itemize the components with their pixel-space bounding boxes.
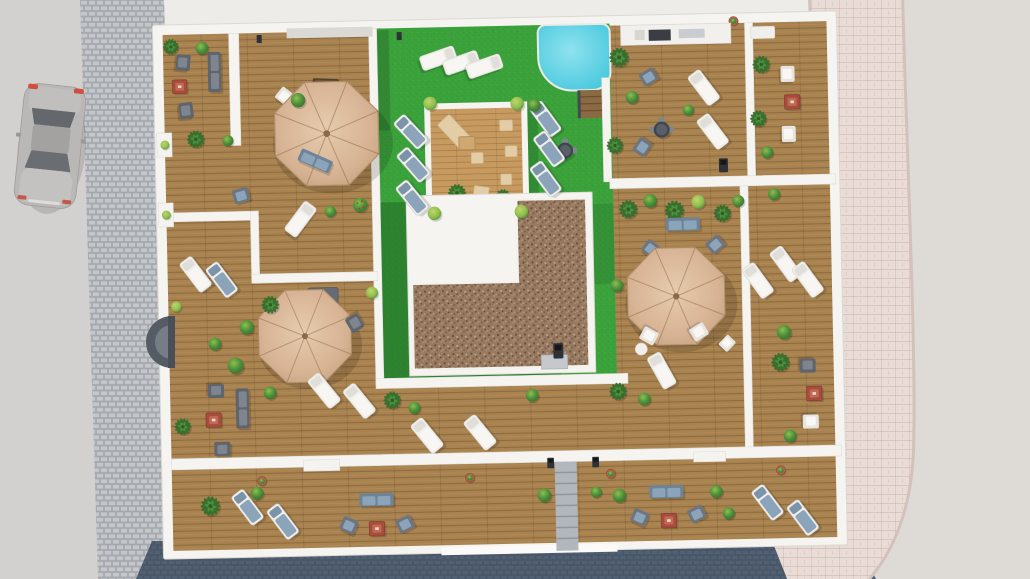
car-roof	[30, 124, 71, 154]
side-table-white	[751, 26, 775, 38]
pool	[537, 24, 610, 91]
outdoor-kitchen	[621, 23, 731, 45]
platform-table	[459, 137, 475, 150]
side-table-round	[635, 343, 647, 355]
render-canvas: Aerial 3D rendering of a residential bui…	[0, 0, 1030, 579]
rooftop-unit-box	[304, 459, 340, 471]
car-mirror	[80, 139, 85, 144]
top-wall-band	[286, 27, 372, 39]
building	[152, 11, 847, 561]
car-mirror	[16, 132, 21, 137]
platform-shadow	[527, 109, 539, 207]
lawn-shade-right	[592, 204, 615, 284]
grill	[649, 29, 671, 40]
service-stair	[555, 461, 579, 550]
sink	[679, 29, 705, 39]
rooftop-unit-box	[693, 451, 725, 462]
rooftop-render: Aerial 3D rendering of a residential bui…	[0, 0, 1030, 579]
